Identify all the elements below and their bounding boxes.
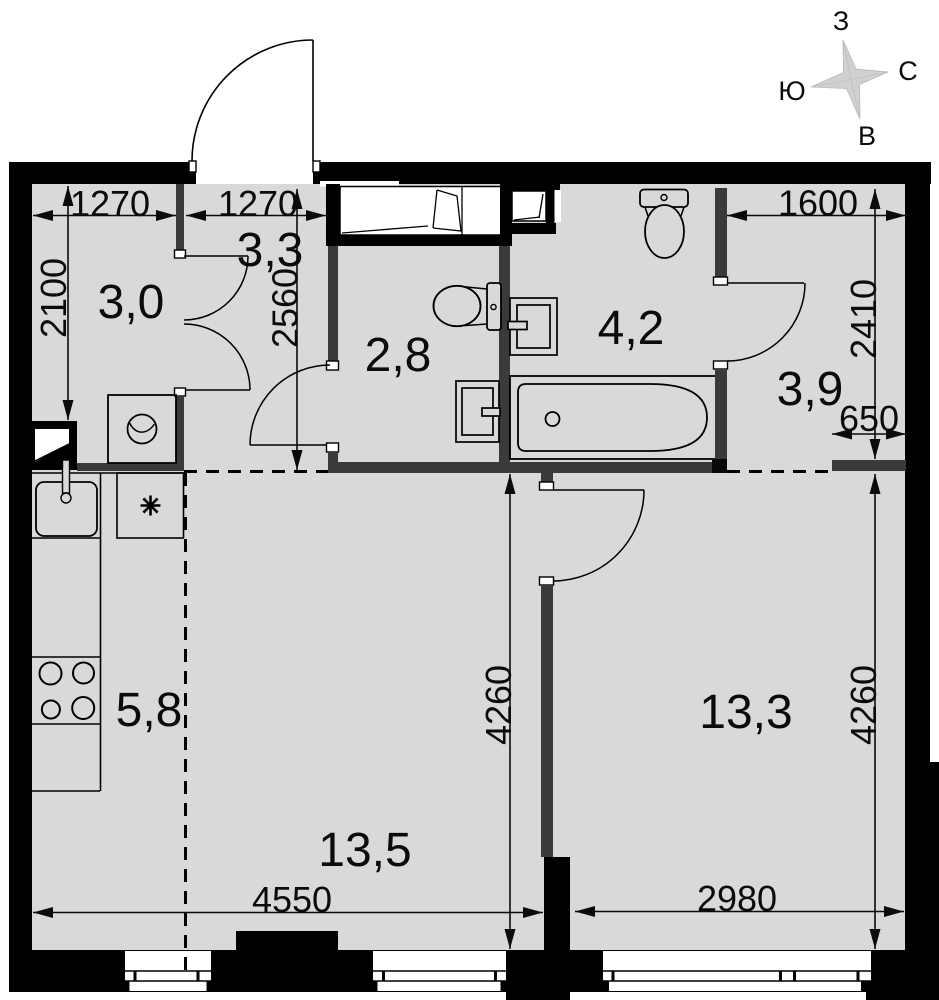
svg-text:650: 650 bbox=[839, 398, 899, 439]
svg-text:1270: 1270 bbox=[70, 183, 150, 224]
svg-text:С: С bbox=[898, 56, 918, 86]
svg-text:13,3: 13,3 bbox=[699, 686, 792, 739]
svg-text:З: З bbox=[833, 6, 849, 36]
svg-text:13,5: 13,5 bbox=[318, 824, 411, 877]
svg-text:1600: 1600 bbox=[778, 183, 858, 224]
svg-text:4550: 4550 bbox=[252, 879, 332, 920]
svg-text:3,9: 3,9 bbox=[777, 363, 844, 416]
svg-text:Ю: Ю bbox=[778, 76, 805, 106]
svg-text:2100: 2100 bbox=[33, 258, 74, 338]
svg-text:2980: 2980 bbox=[697, 878, 777, 919]
svg-text:2410: 2410 bbox=[843, 279, 884, 359]
svg-text:4260: 4260 bbox=[478, 665, 519, 745]
svg-text:1270: 1270 bbox=[218, 183, 298, 224]
svg-text:В: В bbox=[858, 121, 876, 151]
svg-text:3,0: 3,0 bbox=[98, 276, 165, 329]
svg-text:4,2: 4,2 bbox=[598, 302, 665, 355]
svg-text:2,8: 2,8 bbox=[365, 329, 432, 382]
svg-text:5,8: 5,8 bbox=[116, 684, 183, 737]
svg-text:2560: 2560 bbox=[265, 268, 306, 348]
svg-text:4260: 4260 bbox=[843, 665, 884, 745]
